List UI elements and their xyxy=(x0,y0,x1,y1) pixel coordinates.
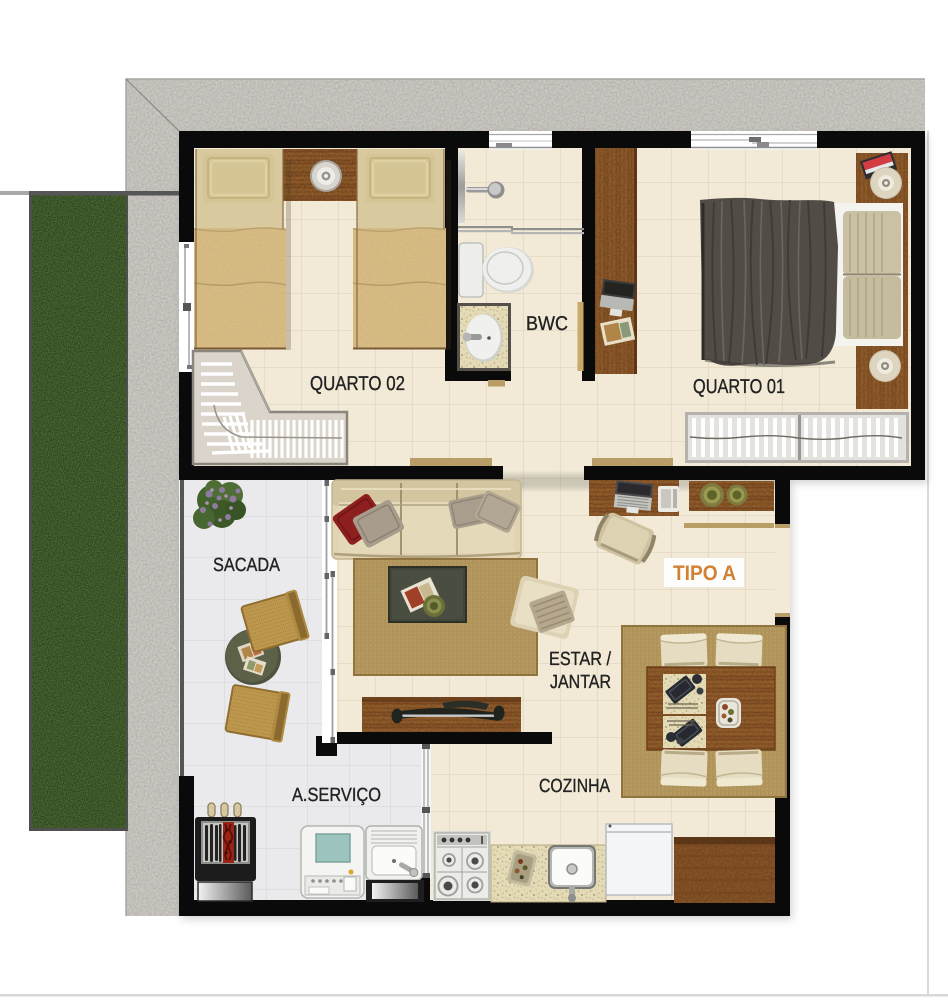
svg-text:TIPO A: TIPO A xyxy=(673,562,736,585)
svg-text:SACADA: SACADA xyxy=(213,555,280,576)
svg-text:BWC: BWC xyxy=(526,313,568,335)
svg-text:COZINHA: COZINHA xyxy=(539,776,610,797)
svg-text:JANTAR: JANTAR xyxy=(550,672,611,693)
svg-text:ESTAR /: ESTAR / xyxy=(549,649,612,670)
svg-text:QUARTO 01: QUARTO 01 xyxy=(693,376,785,398)
svg-text:QUARTO 02: QUARTO 02 xyxy=(310,373,405,395)
svg-text:A.SERVIÇO: A.SERVIÇO xyxy=(292,785,381,806)
